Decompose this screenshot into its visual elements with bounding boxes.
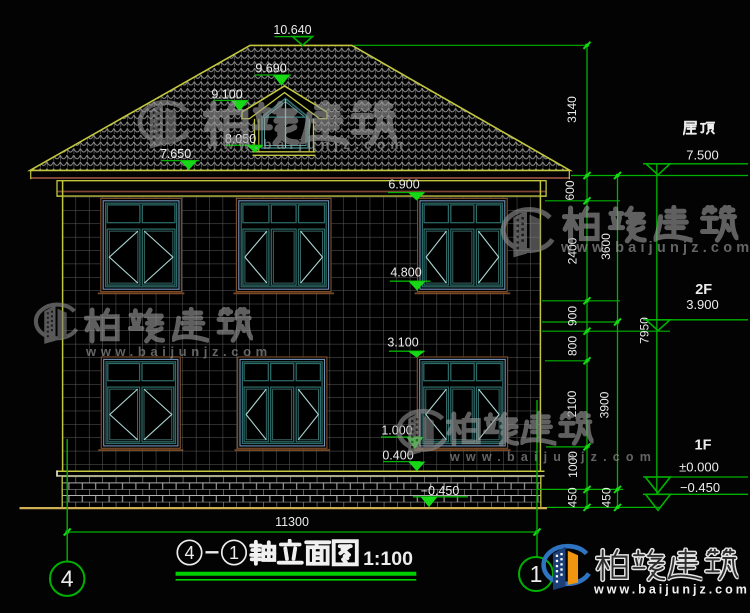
svg-text:1:100: 1:100 <box>363 548 413 570</box>
svg-text:3900: 3900 <box>598 391 612 418</box>
svg-text:9.100: 9.100 <box>211 88 242 102</box>
svg-text:7.500: 7.500 <box>686 148 719 163</box>
svg-text:4.800: 4.800 <box>390 266 421 280</box>
svg-text:www.baijunjz.com: www.baijunjz.com <box>85 344 272 359</box>
svg-text:www.baijunjz.com: www.baijunjz.com <box>560 240 750 256</box>
svg-text:www.baijunjz.com: www.baijunjz.com <box>593 583 750 597</box>
svg-text:10.640: 10.640 <box>273 23 311 37</box>
svg-text:2F: 2F <box>695 282 712 298</box>
svg-text:4: 4 <box>184 543 194 563</box>
svg-text:7.650: 7.650 <box>160 147 191 161</box>
svg-text:±0.000: ±0.000 <box>679 459 719 474</box>
svg-text:1F: 1F <box>695 437 712 453</box>
svg-text:6.900: 6.900 <box>388 178 419 192</box>
svg-text:−0.450: −0.450 <box>421 484 460 498</box>
svg-text:www.baijunjz.com: www.baijunjz.com <box>449 450 657 464</box>
svg-text:www.baijunjz.com: www.baijunjz.com <box>206 136 408 152</box>
svg-text:7950: 7950 <box>638 317 652 344</box>
svg-text:11300: 11300 <box>275 515 309 529</box>
svg-text:450: 450 <box>600 487 614 507</box>
svg-text:900: 900 <box>566 306 580 326</box>
svg-text:9.690: 9.690 <box>255 62 286 76</box>
svg-text:450: 450 <box>566 487 580 507</box>
svg-text:3140: 3140 <box>565 96 579 123</box>
svg-text:1: 1 <box>530 561 543 587</box>
svg-text:4: 4 <box>61 566 74 592</box>
svg-text:800: 800 <box>566 336 580 356</box>
svg-text:600: 600 <box>563 180 577 200</box>
svg-text:−0.450: −0.450 <box>680 480 720 495</box>
svg-text:3.100: 3.100 <box>387 336 418 350</box>
svg-text:1: 1 <box>229 543 239 563</box>
svg-text:3.900: 3.900 <box>686 297 719 312</box>
